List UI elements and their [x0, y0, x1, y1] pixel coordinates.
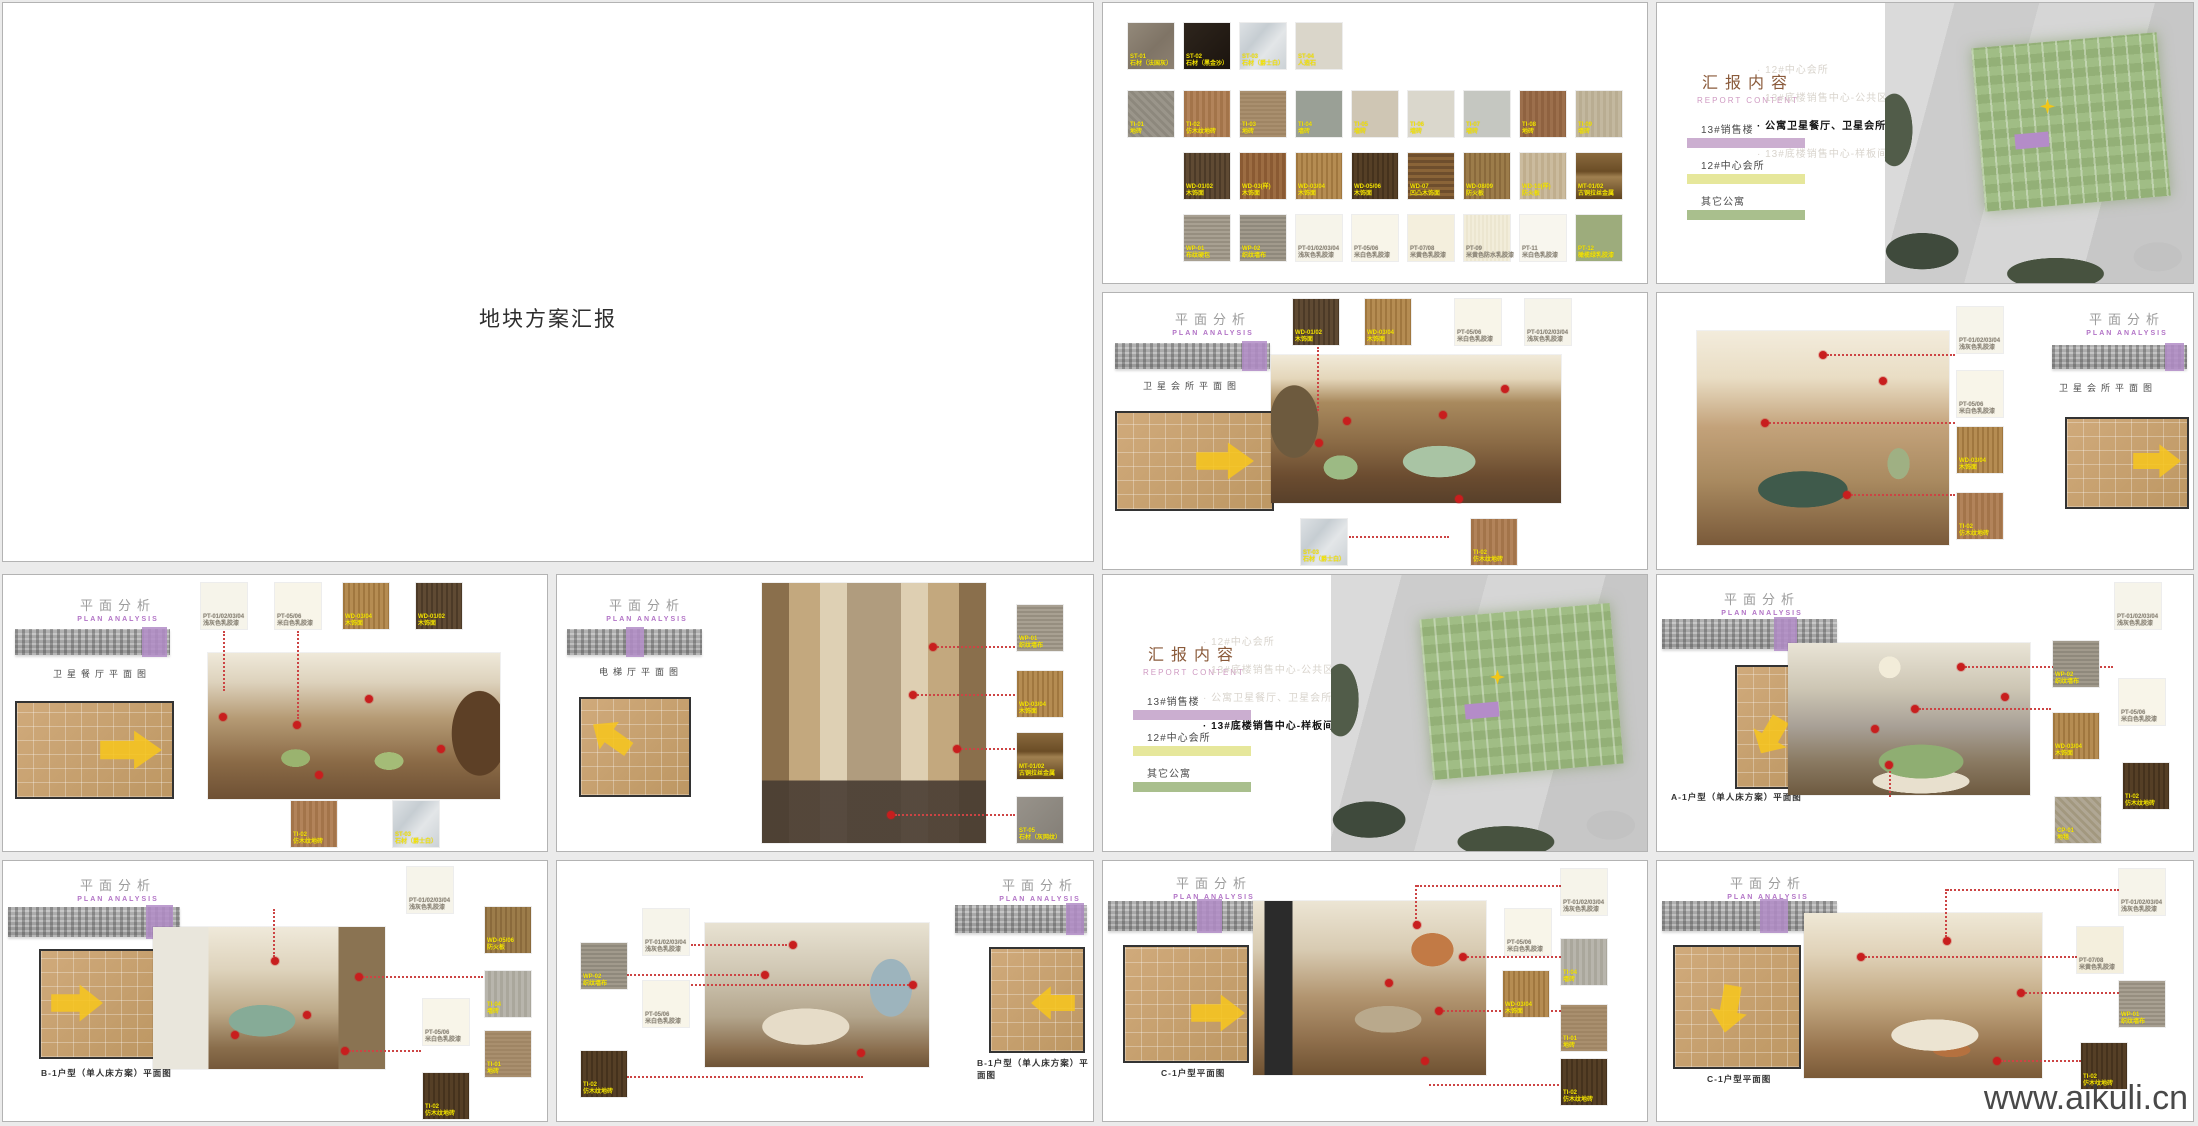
material-code: PT-05/06 — [277, 614, 313, 621]
material-swatch: ST-05 石材（灰网纹） — [1017, 797, 1063, 843]
material-swatch: PT-09 米黄色防水乳胶漆 — [1464, 215, 1510, 261]
material-callout: PT-05/06 米白色乳胶漆 — [423, 999, 469, 1045]
material-name: 浅灰色乳胶漆 — [2121, 907, 2162, 914]
material-swatch-label: PT-01/02/03/04 浅灰色乳胶漆 — [1959, 338, 2000, 352]
material-callout: WD-03/04 木饰面 — [2053, 713, 2099, 759]
material-swatch-label: TI-01 地砖 — [1130, 122, 1144, 136]
material-swatch: TI-04 墙砖 — [1561, 939, 1607, 985]
material-code: PT-12 — [1578, 246, 1614, 253]
material-callout: PT-05/06 米白色乳胶漆 — [1957, 371, 2003, 417]
legend-color-bar — [1687, 174, 1805, 184]
material-name: 仿木纹地砖 — [583, 1089, 613, 1096]
material-swatch-label: TI-06 墙砖 — [1410, 122, 1424, 136]
material-callout: TI-02 仿木纹地砖 — [1471, 519, 1517, 565]
material-name: 仿木纹地砖 — [2125, 801, 2155, 808]
material-swatch-label: TI-02 仿木纹地砖 — [293, 832, 323, 846]
material-code: ST-04 — [1298, 54, 1316, 61]
material-name: 米白色乳胶漆 — [645, 1019, 681, 1026]
material-name: 浅灰色乳胶漆 — [1298, 253, 1339, 260]
material-code: TI-06 — [1410, 122, 1424, 129]
material-code: WD-10(样) — [1522, 184, 1551, 191]
material-callout: PT-01/02/03/04 浅灰色乳胶漆 — [643, 909, 689, 955]
material-code: WD-03/04 — [1505, 1002, 1532, 1009]
material-swatch-label: PT-07/08 米黄色乳胶漆 — [1410, 246, 1446, 260]
material-swatch: WD-01/02 木饰面 — [1184, 153, 1230, 199]
material-swatch: TI-02 仿木纹地砖 — [1184, 91, 1230, 137]
material-swatch: TI-05 墙砖 — [1352, 91, 1398, 137]
material-code: TI-01 — [487, 1062, 501, 1069]
material-callouts: PT-01/02/03/04 浅灰色乳胶漆 WD-05/06 防火板 TI-04… — [3, 861, 547, 1121]
material-swatch-label: WD-10(样) 防火板 — [1522, 184, 1551, 198]
site-plan-rendering — [1885, 3, 2194, 284]
material-callout: ST-03 石材（爵士白） — [393, 801, 439, 847]
material-swatch-label: WD-05/06 木饰面 — [1354, 184, 1381, 198]
material-swatch: WD-05/06 防火板 — [485, 907, 531, 953]
material-code: WP-01 — [1186, 246, 1210, 253]
material-swatch: TI-06 墙砖 — [1408, 91, 1454, 137]
site-plan-rendering — [1331, 575, 1648, 852]
material-code: WD-05/06 — [1354, 184, 1381, 191]
material-code: PT-05/06 — [1959, 402, 1995, 409]
material-callout: PT-01/02/03/04 浅灰色乳胶漆 — [1561, 869, 1607, 915]
sales-building-highlight — [2015, 131, 2050, 149]
material-code: PT-01/02/03/04 — [2121, 900, 2162, 907]
material-swatch: PT-01/02/03/04 浅灰色乳胶漆 — [2119, 869, 2165, 915]
material-code: TI-02 — [1186, 122, 1216, 129]
material-swatch-label: TI-03 地砖 — [1242, 122, 1256, 136]
material-swatch-label: PT-01/02/03/04 浅灰色乳胶漆 — [1563, 900, 1604, 914]
material-callout: WD-05/06 防火板 — [485, 907, 531, 953]
material-callout: WD-03/04 木饰面 — [343, 583, 389, 629]
apartment-area-highlight — [1420, 603, 1624, 780]
material-callout: PT-05/06 米白色乳胶漆 — [1455, 299, 1501, 345]
material-swatch-label: TI-02 仿木纹地砖 — [583, 1082, 613, 1096]
material-callout: ST-05 石材（灰网纹） — [1017, 797, 1063, 843]
material-callouts: PT-01/02/03/04 浅灰色乳胶漆 PT-05/06 米白色乳胶漆 WD… — [1657, 293, 2193, 569]
material-swatch-label: WP-02 织纹墙布 — [2055, 672, 2079, 686]
material-callouts: PT-01/02/03/04 浅灰色乳胶漆 WP-02 织纹墙布 PT-05/0… — [1657, 575, 2193, 851]
material-callout: WD-01/02 木饰面 — [416, 583, 462, 629]
slide-bedroom-a1[interactable]: 平面分析 PLAN ANALYSIS A-1户型（单人床方案）平面图 PT-01… — [1656, 574, 2194, 852]
material-code: ST-03 — [1242, 54, 1284, 61]
material-swatch: PT-05/06 米白色乳胶漆 — [423, 999, 469, 1045]
material-swatch-label: WD-05/06 防火板 — [487, 938, 514, 952]
material-name: 墙砖 — [1563, 977, 1577, 984]
material-name: 织纹墙布 — [1242, 253, 1266, 260]
material-name: 地砖 — [1130, 129, 1144, 136]
report-bullet-list: 12#中心会所 13#底楼销售中心-公共区 公寓卫星餐厅、卫星会所 13#底楼销… — [1757, 61, 1889, 173]
material-name: 防火板 — [1522, 191, 1551, 198]
legend-label: 其它公寓 — [1701, 193, 1805, 208]
material-name: 浅灰色乳胶漆 — [1959, 345, 2000, 352]
material-name: 防火板 — [1466, 191, 1493, 198]
material-swatch: PT-05/06 米白色乳胶漆 — [2119, 679, 2165, 725]
material-name: 古铜拉丝金属 — [1019, 771, 1055, 778]
material-name: 浅灰色乳胶漆 — [1527, 337, 1568, 344]
material-swatch: TI-02 仿木纹地砖 — [2123, 763, 2169, 809]
material-swatch: TI-04 墙砖 — [485, 971, 531, 1017]
material-code: TI-02 — [2125, 794, 2155, 801]
material-swatch-label: TI-02 仿木纹地砖 — [1563, 1090, 1593, 1104]
material-name: 墙砖 — [1578, 129, 1592, 136]
material-swatch-label: PT-05/06 米白色乳胶漆 — [425, 1030, 461, 1044]
material-name: 地砖 — [1242, 129, 1256, 136]
material-name: 墙砖 — [1410, 129, 1424, 136]
material-swatch: TI-02 仿木纹地砖 — [1957, 493, 2003, 539]
material-callout: PT-07/08 米黄色乳胶漆 — [2077, 927, 2123, 973]
report-bullet-list: 12#中心会所 13#底楼销售中心-公共区 公寓卫星餐厅、卫星会所 13#底楼销… — [1203, 633, 1335, 745]
slide-bedroom-b1[interactable]: 平面分析 PLAN ANALYSIS B-1户型（单人床方案）平面图 PT-01… — [556, 860, 1094, 1122]
material-code: ST-02 — [1186, 54, 1228, 61]
material-callout: WP-02 织纹墙布 — [581, 943, 627, 989]
material-callout: WD-03/04 木饰面 — [1017, 671, 1063, 717]
material-code: WP-01 — [2121, 1012, 2145, 1019]
material-swatch: WD-01/02 木饰面 — [416, 583, 462, 629]
material-name: 木饰面 — [1298, 191, 1325, 198]
legend-color-bar — [1687, 210, 1805, 220]
material-swatch-label: PT-11 米白色乳胶漆 — [1522, 246, 1558, 260]
material-swatch: TI-02 仿木纹地砖 — [423, 1073, 469, 1119]
material-name: 木饰面 — [1959, 465, 1986, 472]
legend-label: 其它公寓 — [1147, 765, 1251, 780]
material-swatch: PT-11 米白色乳胶漆 — [1520, 215, 1566, 261]
material-name: 米白色乳胶漆 — [1354, 253, 1390, 260]
material-swatch-label: ST-04 人造石 — [1298, 54, 1316, 68]
material-swatch-label: PT-01/02/03/04 浅灰色乳胶漆 — [1527, 330, 1568, 344]
material-code: PT-01/02/03/04 — [1959, 338, 2000, 345]
material-swatch-label: WD-03/04 木饰面 — [1367, 330, 1394, 344]
sales-building-highlight — [1464, 701, 1499, 719]
bullet-item: 13#底楼销售中心-公共区 — [1757, 89, 1889, 104]
material-swatch-label: TI-02 仿木纹地砖 — [2125, 794, 2155, 808]
material-swatch-label: WD-01/02 木饰面 — [1186, 184, 1213, 198]
material-callout: PT-01/02/03/04 浅灰色乳胶漆 — [407, 867, 453, 913]
material-swatch-label: PT-01/02/03/04 浅灰色乳胶漆 — [409, 898, 450, 912]
material-swatch: WD-03/04 木饰面 — [1017, 671, 1063, 717]
material-swatch: PT-01/02/03/04 浅灰色乳胶漆 — [407, 867, 453, 913]
material-code: CP-01 — [2057, 828, 2074, 835]
material-swatch: PT-05/06 米白色乳胶漆 — [275, 583, 321, 629]
material-swatch: PT-07/08 米黄色乳胶漆 — [2077, 927, 2123, 973]
slide-report-content-2[interactable]: 汇报内容 REPORT CONTENT 13#销售楼 12#中心会所 其它公寓 … — [1102, 574, 1648, 852]
material-swatch-label: PT-12 橄榄绿乳胶漆 — [1578, 246, 1614, 260]
material-callout: WD-03/04 木饰面 — [1365, 299, 1411, 345]
material-swatch: PT-01/02/03/04 浅灰色乳胶漆 — [1957, 307, 2003, 353]
material-code: PT-05/06 — [1457, 330, 1493, 337]
material-code: TI-04 — [1563, 970, 1577, 977]
material-swatch-label: WD-03/04 木饰面 — [2055, 744, 2082, 758]
material-swatch-label: PT-05/06 米白色乳胶漆 — [1507, 940, 1543, 954]
material-name: 石材（灰网纹） — [1019, 835, 1061, 842]
material-callout: TI-01 地砖 — [1561, 1005, 1607, 1051]
material-name: 木饰面 — [1186, 191, 1213, 198]
material-callout: TI-02 仿木纹地砖 — [423, 1073, 469, 1119]
material-swatch-label: TI-02 仿木纹地砖 — [425, 1104, 455, 1118]
material-name: 木饰面 — [1295, 337, 1322, 344]
material-swatch: WP-01 布纹硬包 — [1184, 215, 1230, 261]
material-code: MT-01/02 — [1019, 764, 1055, 771]
material-callouts: WP-01 织纹墙布 WD-03/04 木饰面 MT-01/02 古铜拉丝金属 — [557, 575, 1093, 851]
material-code: WP-01 — [1019, 636, 1043, 643]
material-code: WP-02 — [2055, 672, 2079, 679]
material-code: TI-08 — [1522, 122, 1536, 129]
material-callout: WP-01 织纹墙布 — [2119, 981, 2165, 1027]
material-row-paint: WP-01 布纹硬包 WP-02 织纹墙布 PT-01/02/03/04 浅灰色… — [1184, 215, 1622, 261]
material-code: PT-01/02/03/04 — [2117, 614, 2158, 621]
material-name: 浅灰色乳胶漆 — [203, 621, 244, 628]
material-code: ST-03 — [395, 832, 437, 839]
slide-report-content-1[interactable]: 汇报内容 REPORT CONTENT 13#销售楼 12#中心会所 其它公寓 … — [1656, 2, 2194, 284]
material-swatch: PT-01/02/03/04 浅灰色乳胶漆 — [1561, 869, 1607, 915]
legend-color-bar — [1133, 782, 1251, 792]
material-swatch-label: TI-02 仿木纹地砖 — [1186, 122, 1216, 136]
material-name: 木饰面 — [1019, 709, 1046, 716]
material-name: 木饰面 — [1367, 337, 1394, 344]
material-name: 米白色乳胶漆 — [1959, 409, 1995, 416]
material-name: 米白色乳胶漆 — [2121, 717, 2157, 724]
material-code: TI-02 — [1473, 550, 1503, 557]
material-code: WD-03/04 — [1298, 184, 1325, 191]
material-swatch: ST-03 石材（爵士白） — [1240, 23, 1286, 69]
material-name: 石材（爵士白） — [1303, 557, 1345, 564]
material-code: TI-02 — [1563, 1090, 1593, 1097]
material-swatch: TI-02 仿木纹地砖 — [1471, 519, 1517, 565]
material-name: 墙砖 — [1354, 129, 1368, 136]
material-swatch: WD-03/04 木饰面 — [343, 583, 389, 629]
material-swatch: CP-01 地毯 — [2055, 797, 2101, 843]
material-name: 石材（法国灰） — [1130, 61, 1172, 68]
material-swatch-label: WD-03/04 木饰面 — [345, 614, 372, 628]
material-name: 米白色乳胶漆 — [1457, 337, 1493, 344]
material-name: 石材（爵士白） — [395, 839, 437, 846]
material-code: PT-11 — [1522, 246, 1558, 253]
material-code: PT-05/06 — [2121, 710, 2157, 717]
material-code: WD-03/04 — [2055, 744, 2082, 751]
material-swatch-label: TI-04 墙砖 — [1298, 122, 1312, 136]
material-callout: ST-03 石材（爵士白） — [1301, 519, 1347, 565]
material-callout: TI-02 仿木纹地砖 — [1561, 1059, 1607, 1105]
material-swatch: WP-02 织纹墙布 — [581, 943, 627, 989]
material-name: 橄榄绿乳胶漆 — [1578, 253, 1614, 260]
material-code: WD-03/04 — [345, 614, 372, 621]
material-callout: PT-01/02/03/04 浅灰色乳胶漆 — [1957, 307, 2003, 353]
material-swatch: TI-09 墙砖 — [1576, 91, 1622, 137]
material-name: 浅灰色乳胶漆 — [409, 905, 450, 912]
material-code: PT-01/02/03/04 — [203, 614, 244, 621]
material-name: 墙砖 — [1298, 129, 1312, 136]
slide-clubhouse-lounge[interactable]: 平面分析 PLAN ANALYSIS 卫星会所平面图 WD-01/02 木饰面 — [1102, 292, 1648, 570]
material-swatch-label: TI-09 墙砖 — [1578, 122, 1592, 136]
material-swatch: ST-04 人造石 — [1296, 23, 1342, 69]
material-swatch-label: MT-01/02 古铜拉丝金属 — [1019, 764, 1055, 778]
material-name: 织纹墙布 — [1019, 643, 1043, 650]
material-swatch: WD-03/04 木饰面 — [1365, 299, 1411, 345]
site-watermark: www.aikuli.cn — [1984, 1079, 2188, 1118]
material-swatch: TI-02 仿木纹地砖 — [581, 1051, 627, 1097]
material-swatch-label: WP-02 织纹墙布 — [1242, 246, 1266, 260]
material-swatch-label: TI-05 墙砖 — [1354, 122, 1368, 136]
material-swatch: PT-01/02/03/04 浅灰色乳胶漆 — [1525, 299, 1571, 345]
material-swatch: WD-03/04 木饰面 — [1957, 427, 2003, 473]
material-callouts: PT-01/02/03/04 浅灰色乳胶漆 PT-05/06 米白色乳胶漆 WD… — [3, 575, 547, 851]
material-name: 布纹硬包 — [1186, 253, 1210, 260]
material-code: TI-07 — [1466, 122, 1480, 129]
material-callouts: WD-01/02 木饰面 WD-03/04 木饰面 PT-05/06 米白色乳胶… — [1103, 293, 1647, 569]
material-swatch-label: PT-01/02/03/04 浅灰色乳胶漆 — [1298, 246, 1339, 260]
material-swatch: MT-01/02 古铜拉丝金属 — [1576, 153, 1622, 199]
material-swatch: ST-02 石材（黑金沙） — [1184, 23, 1230, 69]
material-callouts: PT-01/02/03/04 浅灰色乳胶漆 WP-02 织纹墙布 PT-05/0… — [557, 861, 1093, 1121]
material-swatch-label: WP-01 布纹硬包 — [1186, 246, 1210, 260]
material-code: TI-01 — [1563, 1036, 1577, 1043]
material-swatch-label: PT-01/02/03/04 浅灰色乳胶漆 — [2121, 900, 2162, 914]
material-name: 浅灰色乳胶漆 — [645, 947, 686, 954]
material-name: 浅灰色乳胶漆 — [1563, 907, 1604, 914]
material-swatch-label: WD-07 凹凸木饰面 — [1410, 184, 1440, 198]
material-swatch-label: TI-02 仿木纹地砖 — [1959, 524, 1989, 538]
material-swatch: TI-03 地砖 — [1240, 91, 1286, 137]
material-swatch: WD-10(样) 防火板 — [1520, 153, 1566, 199]
material-code: TI-02 — [425, 1104, 455, 1111]
material-code: PT-05/06 — [425, 1030, 461, 1037]
material-code: WD-01/02 — [1295, 330, 1322, 337]
material-code: WD-01/02 — [418, 614, 445, 621]
material-swatch-label: PT-01/02/03/04 浅灰色乳胶漆 — [2117, 614, 2158, 628]
material-name: 地砖 — [1563, 1043, 1577, 1050]
bullet-item-active: 公寓卫星餐厅、卫星会所 — [1757, 117, 1889, 132]
material-swatch: WD-03/04 木饰面 — [2053, 713, 2099, 759]
material-swatch: ST-01 石材（法国灰） — [1128, 23, 1174, 69]
material-code: PT-05/06 — [645, 1012, 681, 1019]
material-callout: TI-02 仿木纹地砖 — [581, 1051, 627, 1097]
material-swatch-label: WD-08/09 防火板 — [1466, 184, 1493, 198]
legend-color-bar — [1133, 746, 1251, 756]
material-code: TI-09 — [1578, 122, 1592, 129]
material-name: 仿木纹地砖 — [1186, 129, 1216, 136]
material-name: 木饰面 — [2055, 751, 2082, 758]
material-swatch: PT-05/06 米白色乳胶漆 — [1505, 909, 1551, 955]
material-name: 米白色乳胶漆 — [1507, 947, 1543, 954]
material-code: WD-07 — [1410, 184, 1440, 191]
bullet-item: 公寓卫星餐厅、卫星会所 — [1203, 689, 1335, 704]
material-swatch-label: WD-03/04 木饰面 — [1959, 458, 1986, 472]
material-swatch-label: WP-02 织纹墙布 — [583, 974, 607, 988]
slide-dining-hall[interactable]: 平面分析 PLAN ANALYSIS 卫星餐厅平面图 PT-01/02/03/0… — [2, 574, 548, 852]
material-swatch-label: TI-04 墙砖 — [487, 1002, 501, 1016]
slide-elevator-hall[interactable]: 平面分析 PLAN ANALYSIS 电梯厅平面图 WP-01 织纹墙布 — [556, 574, 1094, 852]
material-swatch-label: PT-07/08 米黄色乳胶漆 — [2079, 958, 2115, 972]
material-row-stone: ST-01 石材（法国灰） ST-02 石材（黑金沙） ST-03 石材（爵士白… — [1128, 23, 1342, 69]
material-code: TI-02 — [583, 1082, 613, 1089]
material-callout: PT-01/02/03/04 浅灰色乳胶漆 — [1525, 299, 1571, 345]
material-name: 米黄色乳胶漆 — [2079, 965, 2115, 972]
material-swatch: PT-01/02/03/04 浅灰色乳胶漆 — [1296, 215, 1342, 261]
slide-billiards-room[interactable]: 平面分析 PLAN ANALYSIS 卫星会所平面图 PT-01/02/03/0… — [1656, 292, 2194, 570]
material-swatch-label: MT-01/02 古铜拉丝金属 — [1578, 184, 1614, 198]
apartment-area-highlight — [1971, 32, 2171, 211]
material-swatch: WD-07 凹凸木饰面 — [1408, 153, 1454, 199]
material-callout: PT-05/06 米白色乳胶漆 — [1505, 909, 1551, 955]
material-name: 墙砖 — [487, 1009, 501, 1016]
material-code: PT-07/08 — [2079, 958, 2115, 965]
material-name: 浅灰色乳胶漆 — [2117, 621, 2158, 628]
legend-item: 其它公寓 — [1133, 765, 1251, 792]
material-callout: WD-03/04 木饰面 — [1503, 971, 1549, 1017]
material-name: 木饰面 — [1354, 191, 1381, 198]
material-callout: PT-05/06 米白色乳胶漆 — [275, 583, 321, 629]
material-swatch-label: ST-05 石材（灰网纹） — [1019, 828, 1061, 842]
material-swatch: MT-01/02 古铜拉丝金属 — [1017, 733, 1063, 779]
material-callout: PT-01/02/03/04 浅灰色乳胶漆 — [2115, 583, 2161, 629]
material-callout: TI-01 地砖 — [485, 1031, 531, 1077]
material-name: 地砖 — [487, 1069, 501, 1076]
material-swatch-label: ST-02 石材（黑金沙） — [1186, 54, 1228, 68]
material-callout: PT-01/02/03/04 浅灰色乳胶漆 — [2119, 869, 2165, 915]
material-name: 墙砖 — [1466, 129, 1480, 136]
material-code: TI-04 — [1298, 122, 1312, 129]
material-row-tile: TI-01 地砖 TI-02 仿木纹地砖 TI-03 地砖 TI-04 墙砖 T… — [1128, 91, 1622, 137]
material-swatch: WP-01 织纹墙布 — [1017, 605, 1063, 651]
material-swatch-label: PT-05/06 米白色乳胶漆 — [1457, 330, 1493, 344]
material-swatch-label: WD-01/02 木饰面 — [1295, 330, 1322, 344]
material-code: TI-03 — [1242, 122, 1256, 129]
material-code: WD-05/06 — [487, 938, 514, 945]
material-swatch: WD-08/09 防火板 — [1464, 153, 1510, 199]
material-callout: PT-05/06 米白色乳胶漆 — [643, 981, 689, 1027]
slide-living-room-c1[interactable]: 平面分析 PLAN ANALYSIS C-1户型平面图 PT-01/02/03/… — [1102, 860, 1648, 1122]
material-code: WD-03/04 — [1959, 458, 1986, 465]
material-code: PT-05/06 — [1354, 246, 1390, 253]
material-callout: TI-02 仿木纹地砖 — [291, 801, 337, 847]
material-callout: TI-02 仿木纹地砖 — [2123, 763, 2169, 809]
material-code: WD-03/04 — [1019, 702, 1046, 709]
material-code: WP-02 — [1242, 246, 1266, 253]
material-name: 古铜拉丝金属 — [1578, 191, 1614, 198]
slide-living-room-b1[interactable]: 平面分析 PLAN ANALYSIS B-1户型（单人床方案）平面图 PT-01… — [2, 860, 548, 1122]
material-name: 仿木纹地砖 — [1563, 1097, 1593, 1104]
material-code: WD-08/09 — [1466, 184, 1493, 191]
material-code: PT-05/06 — [1507, 940, 1543, 947]
material-callout: WD-03/04 木饰面 — [1957, 427, 2003, 473]
material-swatch: ST-03 石材（爵士白） — [393, 801, 439, 847]
material-swatch: WP-02 织纹墙布 — [2053, 641, 2099, 687]
material-swatch-label: TI-08 地砖 — [1522, 122, 1536, 136]
material-name: 米黄色防水乳胶漆 — [1466, 253, 1514, 260]
material-swatch: ST-03 石材（爵士白） — [1301, 519, 1347, 565]
material-row-wood: WD-01/02 木饰面 WD-03(样) 木饰面 WD-03/04 木饰面 W… — [1184, 153, 1622, 199]
material-name: 仿木纹地砖 — [1473, 557, 1503, 564]
material-swatch: TI-08 地砖 — [1520, 91, 1566, 137]
material-swatch-label: ST-03 石材（爵士白） — [1242, 54, 1284, 68]
material-swatch-label: PT-01/02/03/04 浅灰色乳胶漆 — [203, 614, 244, 628]
material-swatch: PT-07/08 米黄色乳胶漆 — [1408, 215, 1454, 261]
material-swatch: WD-01/02 木饰面 — [1293, 299, 1339, 345]
material-name: 地毯 — [2057, 835, 2074, 842]
material-swatch: PT-05/06 米白色乳胶漆 — [643, 981, 689, 1027]
material-callout: PT-05/06 米白色乳胶漆 — [2119, 679, 2165, 725]
material-swatch: PT-05/06 米白色乳胶漆 — [1455, 299, 1501, 345]
material-swatch-label: WD-03/04 木饰面 — [1298, 184, 1325, 198]
material-swatch: WD-03/04 木饰面 — [1296, 153, 1342, 199]
legend-item: 其它公寓 — [1687, 193, 1805, 220]
slide-material-board[interactable]: ST-01 石材（法国灰） ST-02 石材（黑金沙） ST-03 石材（爵士白… — [1102, 2, 1648, 284]
material-code: WP-02 — [583, 974, 607, 981]
material-code: PT-09 — [1466, 246, 1514, 253]
slide-title[interactable]: 地块方案汇报 — [2, 2, 1094, 562]
material-callout: WP-01 织纹墙布 — [1017, 605, 1063, 651]
material-callout: CP-01 地毯 — [2055, 797, 2101, 843]
material-code: TI-02 — [293, 832, 323, 839]
